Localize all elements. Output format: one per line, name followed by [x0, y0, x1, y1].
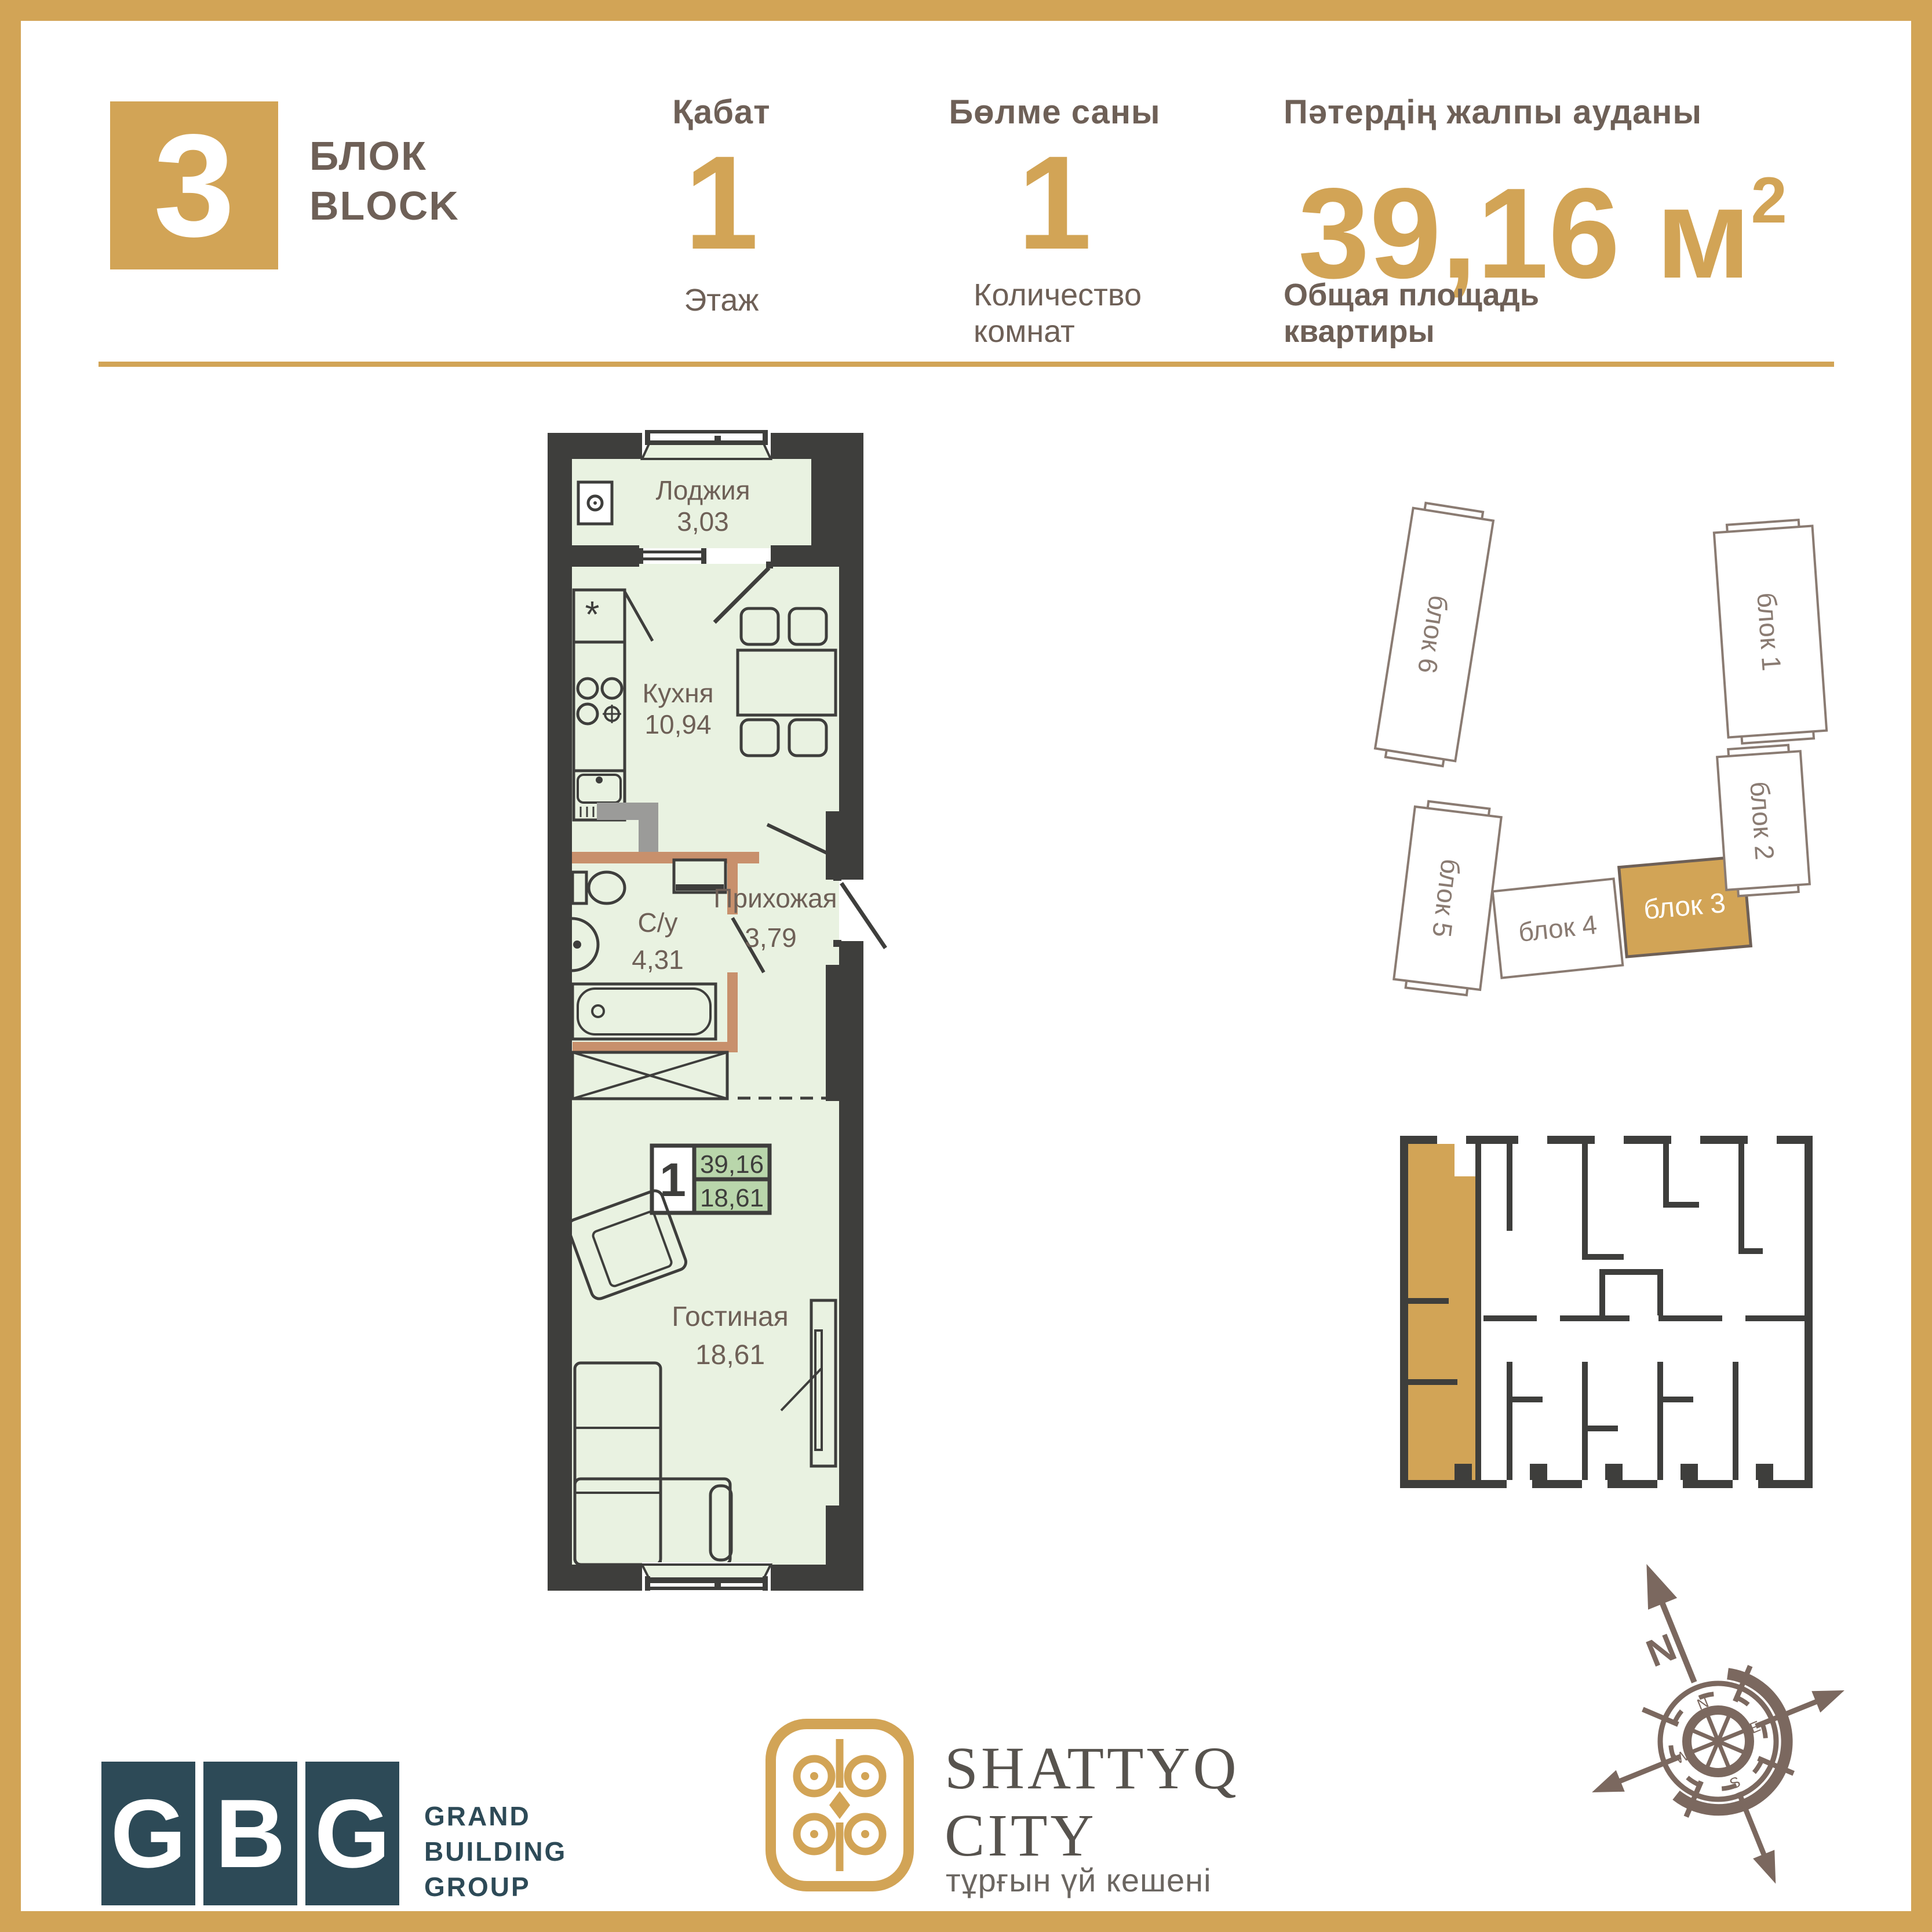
site-plan: блок 6 блок 5 блок 4 блок 3 блок 2: [1362, 498, 1837, 1031]
keyplan-inner-walls: [1455, 1144, 1807, 1480]
site-block-4: блок 4: [1493, 878, 1623, 978]
site-block-2: блок 2: [1716, 744, 1810, 896]
shattyq-emblem-icon: [765, 1718, 914, 1892]
keyplan-highlighted-unit: [1408, 1144, 1475, 1480]
area-value: 39,16 м2: [1298, 136, 1787, 298]
floor-label-ru: Этаж: [635, 282, 808, 319]
gbg-logo: G B G: [101, 1762, 399, 1905]
rooms-value: 1: [939, 139, 1171, 267]
gbg-name: GRAND BUILDING GROUP: [424, 1799, 567, 1905]
badge-total-area: 39,16: [700, 1150, 764, 1179]
compass-rose: N N E S W: [1565, 1559, 1866, 1895]
block-number: 3: [154, 102, 235, 269]
block-label-en: BLOCK: [309, 181, 460, 231]
floor-label-kk: Қабат: [635, 93, 808, 132]
keyplan-window-gaps: [1437, 1136, 1777, 1488]
area-label-kk: Пәтердің жалпы ауданы: [1284, 93, 1702, 132]
partition-kitchen: [572, 852, 759, 863]
room-label-bath: С/у: [638, 907, 678, 938]
room-area-loggia: 3,03: [677, 506, 729, 537]
badge-living-area: 18,61: [700, 1184, 764, 1212]
header-divider: [99, 362, 1834, 367]
block-number-badge: 3: [110, 101, 278, 269]
room-area-living: 18,61: [695, 1340, 765, 1370]
shattyq-subtitle: тұрғын үй кешені: [946, 1861, 1212, 1899]
apartment-floorplan: Лоджия 3,03 *: [539, 429, 910, 1634]
shattyq-title-line1: SHATTYQ: [945, 1734, 1240, 1803]
site-block-5: блок 5: [1393, 800, 1502, 997]
living-window: [642, 1562, 771, 1591]
floor-value: 1: [635, 139, 808, 267]
partition-bath-lower: [727, 972, 738, 1048]
floor-keyplan: [1391, 1124, 1831, 1507]
loggia-window: [642, 429, 771, 459]
room-area-bath: 4,31: [632, 945, 684, 975]
room-label-loggia: Лоджия: [656, 475, 750, 505]
rooms-label-kk: Бөлме саны: [939, 93, 1171, 132]
room-label-living: Гостиная: [672, 1302, 788, 1332]
rooms-label-ru: Количество комнат: [974, 277, 1142, 350]
gbg-square-2: B: [203, 1762, 297, 1905]
site-block-1: блок 1: [1714, 519, 1827, 745]
site-block-6: блок 6: [1374, 501, 1494, 768]
room-area-hall: 3,79: [745, 923, 797, 953]
sink-faucet: [596, 777, 603, 783]
block-label: БЛОК BLOCK: [309, 131, 460, 231]
area-label-ru: Общая площадь квартиры: [1284, 277, 1539, 350]
basin-faucet: [573, 941, 581, 949]
gbg-square-1: G: [101, 1762, 195, 1905]
room-area-kitchen: 10,94: [644, 709, 711, 739]
svg-text:блок 2: блок 2: [1744, 781, 1780, 861]
svg-text:блок 1: блок 1: [1751, 592, 1787, 672]
block-label-kk: БЛОК: [309, 131, 460, 181]
water-heater-icon: [578, 482, 612, 524]
gbg-square-3: G: [305, 1762, 399, 1905]
shattyq-title-line2: CITY: [945, 1801, 1097, 1870]
partition-wardrobe: [573, 1042, 738, 1052]
entry-door: [833, 874, 885, 948]
room-label-hall: Прихожая: [713, 883, 837, 913]
fridge-symbol: *: [585, 593, 600, 635]
room-label-kitchen: Кухня: [642, 678, 713, 708]
unit-info-badge: 1 39,16 18,61: [652, 1146, 770, 1213]
area-sup: 2: [1751, 164, 1787, 236]
